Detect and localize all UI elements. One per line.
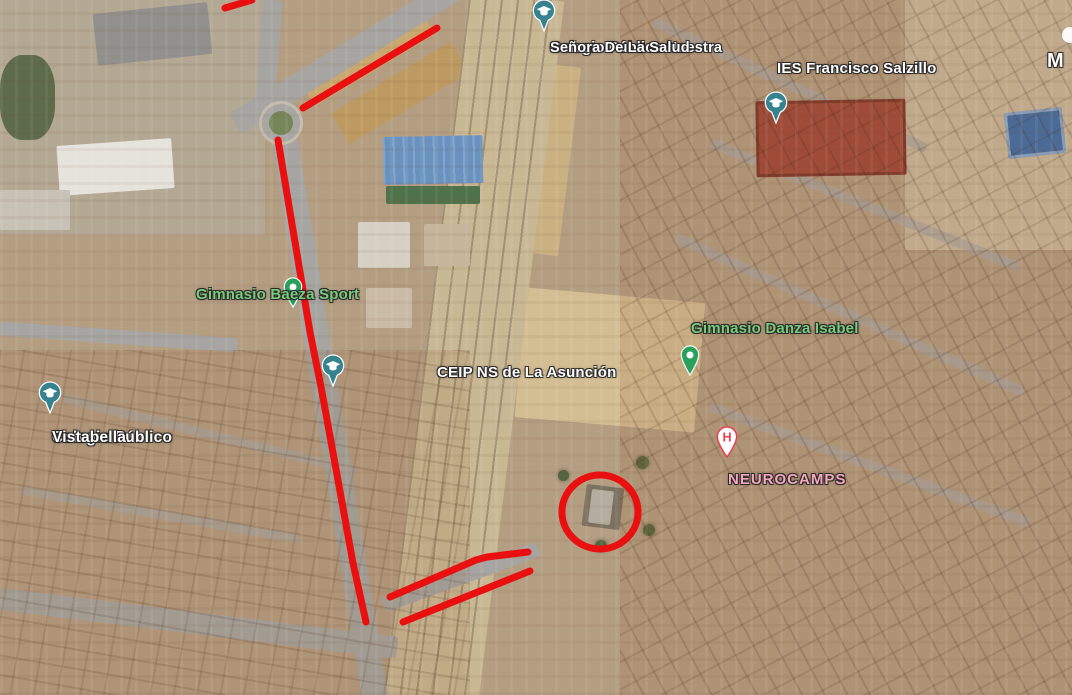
school-pin-salud[interactable] [532,0,556,32]
school-pin-vistabella[interactable] [38,381,62,414]
gym-pin-danza[interactable] [679,345,701,376]
label-line: IES Francisco Salzillo [777,61,936,77]
route-line-top-corner [225,0,252,8]
hospital-pin-neurocamps[interactable]: H [715,426,739,458]
annotation-circle [562,475,638,549]
label-line: NEUROCAMPS [728,472,846,488]
label-line: CEIP NS de La Asunción [437,365,616,381]
route-line-parking-lower [403,571,530,622]
route-line-parking-upper [390,552,528,597]
annotation-layer [0,0,1072,695]
school-pin-salzillo[interactable] [764,91,788,124]
label-line: Gimnasio Danza Isabel [691,321,859,337]
route-line-top-diagonal [303,28,437,108]
satellite-map[interactable]: H Colegio Público Nuestra Señora De La S… [0,0,1072,695]
hospital-h-icon: H [722,431,731,445]
pin-dot-icon [687,351,694,358]
label-line: Gimnasio Baeza Sport [196,287,359,303]
label-line: M [1047,53,1064,69]
label-line: Señora De La Salud [550,40,690,56]
school-pin-asuncion[interactable] [321,354,345,387]
label-line: Vistabella [52,429,126,447]
partial-pin [1062,27,1072,43]
